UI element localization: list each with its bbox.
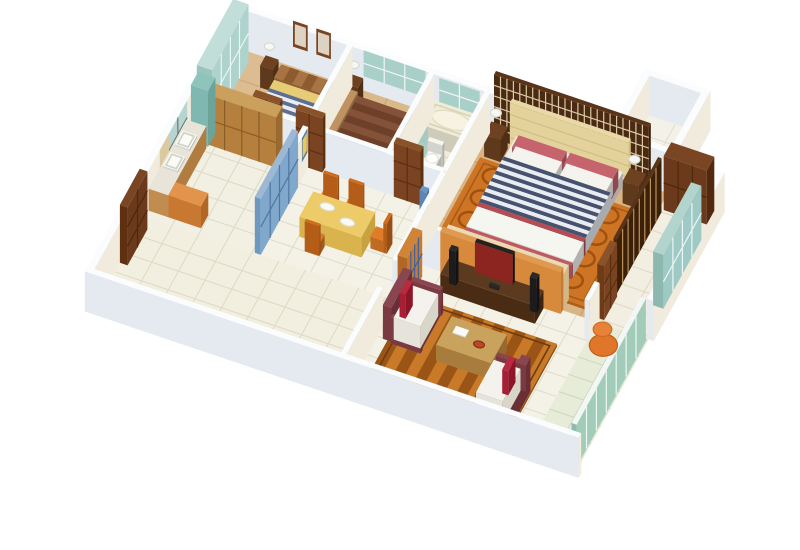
tv-speaker-right-front: [530, 277, 537, 313]
dining-chair-4-back-front: [305, 221, 320, 256]
dining-chair-4-back-side: [319, 224, 320, 256]
tv-speaker-left-side: [456, 247, 459, 286]
master-blanket-trim-side: [584, 238, 586, 257]
floorplan-3d-render: [0, 0, 800, 550]
bedroom2-picture-2-art: [318, 32, 329, 56]
wall-living-balcony-stub-front: [585, 299, 590, 341]
tv-set-side: [513, 251, 515, 285]
dressing-glass-wardrobe-front: [653, 251, 663, 308]
dining-glass-partition-front: [255, 197, 261, 255]
floorplan-image: [0, 0, 800, 550]
dining-chair-3-back-front: [383, 223, 387, 254]
armchair-east-arm-north-side: [526, 362, 528, 392]
armchair-west-back-front: [383, 305, 392, 342]
armchair-east-pillow-front: [502, 369, 508, 395]
armchair-west-pillow-front: [400, 293, 406, 319]
tv-orange-panel-side: [561, 267, 564, 314]
master-sheet-foot-trim-side: [572, 263, 573, 279]
armchair-west-arm-north-side: [441, 287, 443, 317]
tv-speaker-left-front: [449, 250, 456, 286]
foyer-entry-door-front: [120, 205, 128, 266]
east-wall-front: [647, 299, 654, 341]
door-bedroom3-side: [322, 113, 325, 172]
south-wall-side: [579, 433, 582, 478]
alcove-north-wall-side: [708, 91, 711, 136]
tv-speaker-right-side: [537, 274, 540, 313]
toilet-tank-side: [442, 142, 444, 170]
bedroom2-picture-1-art: [295, 24, 306, 48]
